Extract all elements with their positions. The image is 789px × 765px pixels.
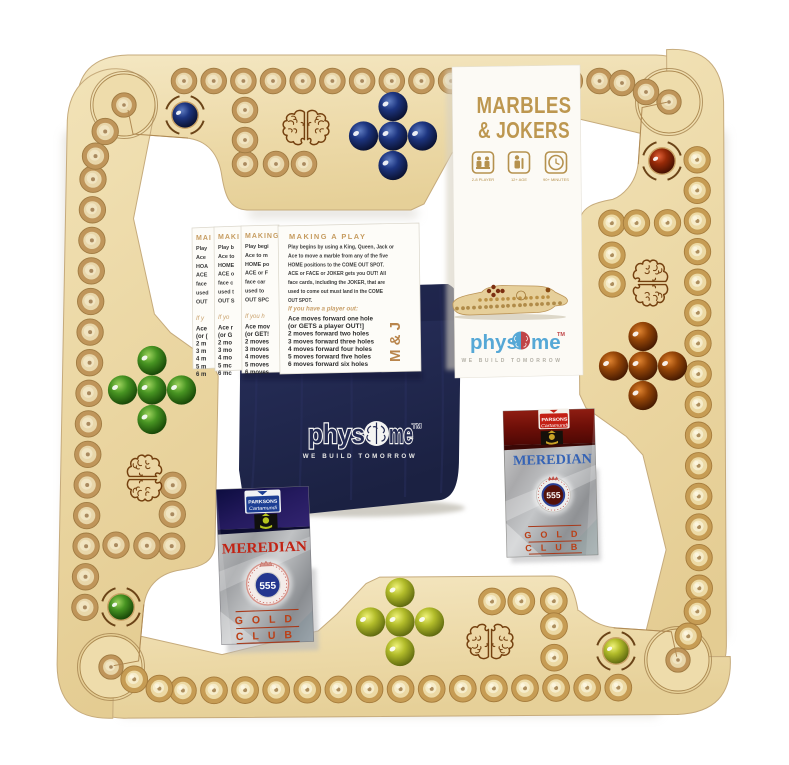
svg-text:ACE o: ACE o xyxy=(218,272,235,278)
svg-text:TM: TM xyxy=(557,332,565,338)
svg-text:OUT SPC: OUT SPC xyxy=(245,297,269,303)
svg-text:4 mo: 4 mo xyxy=(218,356,232,362)
svg-text:3 moves: 3 moves xyxy=(245,347,270,353)
svg-text:Play begins by using a King, Q: Play begins by using a King, Queen, Jack… xyxy=(288,245,395,251)
svg-text:used to: used to xyxy=(245,289,265,295)
svg-text:(or (: (or ( xyxy=(196,334,208,340)
svg-text:M & J: M & J xyxy=(387,322,404,362)
svg-text:Play: Play xyxy=(196,246,207,252)
svg-text:used: used xyxy=(196,291,209,297)
svg-text:90+ MINUTES: 90+ MINUTES xyxy=(543,177,569,182)
svg-text:OUT S: OUT S xyxy=(218,298,235,304)
svg-text:PARSONS: PARSONS xyxy=(541,417,567,423)
svg-text:3 moves forward three holes: 3 moves forward three holes xyxy=(288,338,375,345)
svg-text:TM: TM xyxy=(412,423,421,430)
svg-text:face car: face car xyxy=(245,280,266,286)
svg-text:Cartamundi: Cartamundi xyxy=(541,423,569,429)
svg-text:Play begi: Play begi xyxy=(245,244,269,250)
svg-text:555: 555 xyxy=(259,581,276,593)
svg-text:4 moves forward four holes: 4 moves forward four holes xyxy=(288,346,373,353)
svg-text:WE BUILD TOMORROW: WE BUILD TOMORROW xyxy=(303,453,418,460)
svg-text:(or GETS a player OUT!]: (or GETS a player OUT!] xyxy=(288,323,364,330)
svg-text:ACE or FACE or JOKER gets you: ACE or FACE or JOKER gets you OUT! All xyxy=(288,271,386,277)
svg-text:MEREDIAN: MEREDIAN xyxy=(513,452,592,469)
svg-text:6 moves forward six holes: 6 moves forward six holes xyxy=(288,361,369,368)
svg-text:(or GET!: (or GET! xyxy=(245,332,269,338)
svg-text:3 m: 3 m xyxy=(196,349,206,355)
svg-text:OUT: OUT xyxy=(196,299,208,305)
svg-text:4 m: 4 m xyxy=(196,357,206,363)
svg-text:5 moves: 5 moves xyxy=(245,362,270,368)
svg-text:2 moves: 2 moves xyxy=(245,340,270,346)
svg-text:Ace: Ace xyxy=(196,326,208,332)
svg-text:5 mc: 5 mc xyxy=(218,363,232,369)
svg-text:Play b: Play b xyxy=(218,245,235,251)
svg-text:If yo: If yo xyxy=(218,315,230,321)
svg-text:Ace mov: Ace mov xyxy=(245,324,271,330)
svg-text:6 mc: 6 mc xyxy=(218,371,232,377)
svg-text:MEREDIAN: MEREDIAN xyxy=(222,539,308,558)
svg-text:2 m: 2 m xyxy=(196,342,206,348)
svg-text:2 moves forward two holes: 2 moves forward two holes xyxy=(288,331,370,338)
svg-text:used t: used t xyxy=(218,290,234,296)
svg-text:GOLD: GOLD xyxy=(524,529,586,541)
svg-text:555: 555 xyxy=(546,490,561,500)
svg-text:PARKSONS: PARKSONS xyxy=(248,499,278,506)
svg-text:HOA: HOA xyxy=(196,264,208,270)
svg-text:(or G: (or G xyxy=(218,333,233,339)
svg-text:4 moves: 4 moves xyxy=(245,355,270,361)
svg-text:5 m: 5 m xyxy=(196,364,206,370)
svg-text:OUT SPOT.: OUT SPOT. xyxy=(288,298,312,304)
svg-text:2 mo: 2 mo xyxy=(218,341,232,347)
svg-text:3 mo: 3 mo xyxy=(218,348,232,354)
svg-text:MAKING A PLAY: MAKING A PLAY xyxy=(289,232,366,241)
svg-text:If you h: If you h xyxy=(245,314,265,320)
svg-text:face: face xyxy=(196,282,207,288)
svg-text:ACE: ACE xyxy=(196,273,208,279)
svg-text:CLUB: CLUB xyxy=(525,542,586,554)
svg-text:Ace to m: Ace to m xyxy=(245,253,268,259)
svg-text:MAKING: MAKING xyxy=(245,233,279,240)
svg-text:MARBLES: MARBLES xyxy=(477,92,572,118)
svg-text:HOME po: HOME po xyxy=(245,262,270,268)
svg-text:& JOKERS: & JOKERS xyxy=(478,117,570,143)
svg-text:MAI: MAI xyxy=(196,235,212,242)
svg-text:Ace r: Ace r xyxy=(218,325,234,331)
svg-text:Ace: Ace xyxy=(196,255,206,261)
svg-text:2-8 PLAYER: 2-8 PLAYER xyxy=(472,177,494,182)
svg-text:HOME: HOME xyxy=(218,263,235,269)
svg-text:Cartamundi: Cartamundi xyxy=(249,505,278,512)
svg-text:Ace to move a marble from any: Ace to move a marble from any of the fiv… xyxy=(288,253,388,259)
svg-text:If y: If y xyxy=(196,316,205,322)
svg-text:face cards, including the JOKE: face cards, including the JOKER, that ar… xyxy=(288,280,385,286)
svg-text:Ace to: Ace to xyxy=(218,254,235,260)
svg-text:phys: phys xyxy=(470,331,518,354)
svg-text:5 moves forward five holes: 5 moves forward five holes xyxy=(288,354,372,361)
svg-text:GOLD: GOLD xyxy=(235,613,302,627)
svg-text:12+ AGE: 12+ AGE xyxy=(511,177,527,182)
svg-text:WE BUILD TOMORROW: WE BUILD TOMORROW xyxy=(461,358,562,364)
svg-text:me: me xyxy=(389,419,413,449)
svg-text:HOME positions to the COME OUT: HOME positions to the COME OUT SPOT. xyxy=(288,262,384,268)
svg-text:phys: phys xyxy=(308,419,365,449)
svg-text:CLUB: CLUB xyxy=(236,629,302,643)
svg-text:face c: face c xyxy=(218,281,233,287)
svg-text:6 m: 6 m xyxy=(196,372,206,378)
svg-text:If you have a player out:: If you have a player out: xyxy=(288,306,358,313)
svg-text:MAKI: MAKI xyxy=(218,234,240,241)
svg-text:6 moves: 6 moves xyxy=(245,370,270,376)
svg-text:ACE or F: ACE or F xyxy=(245,271,269,277)
svg-text:used to come out must land in: used to come out must land in the COME xyxy=(288,289,383,295)
svg-text:Ace moves forward one hole: Ace moves forward one hole xyxy=(288,316,374,323)
